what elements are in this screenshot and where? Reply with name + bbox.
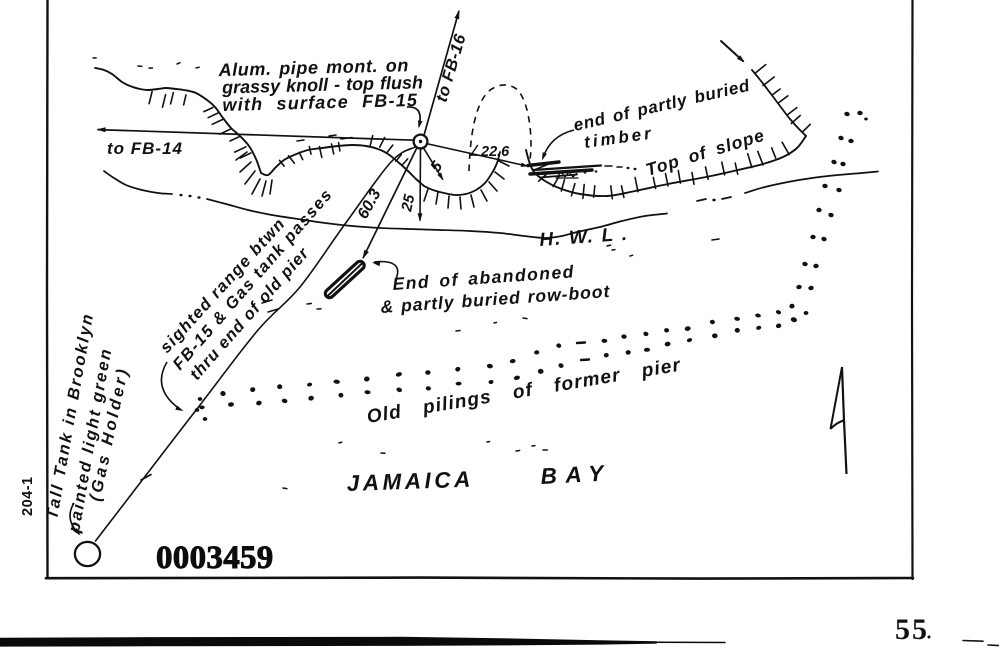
svg-text:55: 55 bbox=[895, 613, 929, 646]
svg-text:0003459: 0003459 bbox=[156, 540, 274, 576]
svg-text:JAMAICA: JAMAICA bbox=[346, 467, 474, 496]
svg-text:to FB-14: to FB-14 bbox=[107, 139, 183, 158]
svg-text:BAY: BAY bbox=[540, 460, 613, 489]
svg-text:204-1: 204-1 bbox=[20, 476, 36, 516]
svg-text:22.6: 22.6 bbox=[480, 144, 510, 160]
